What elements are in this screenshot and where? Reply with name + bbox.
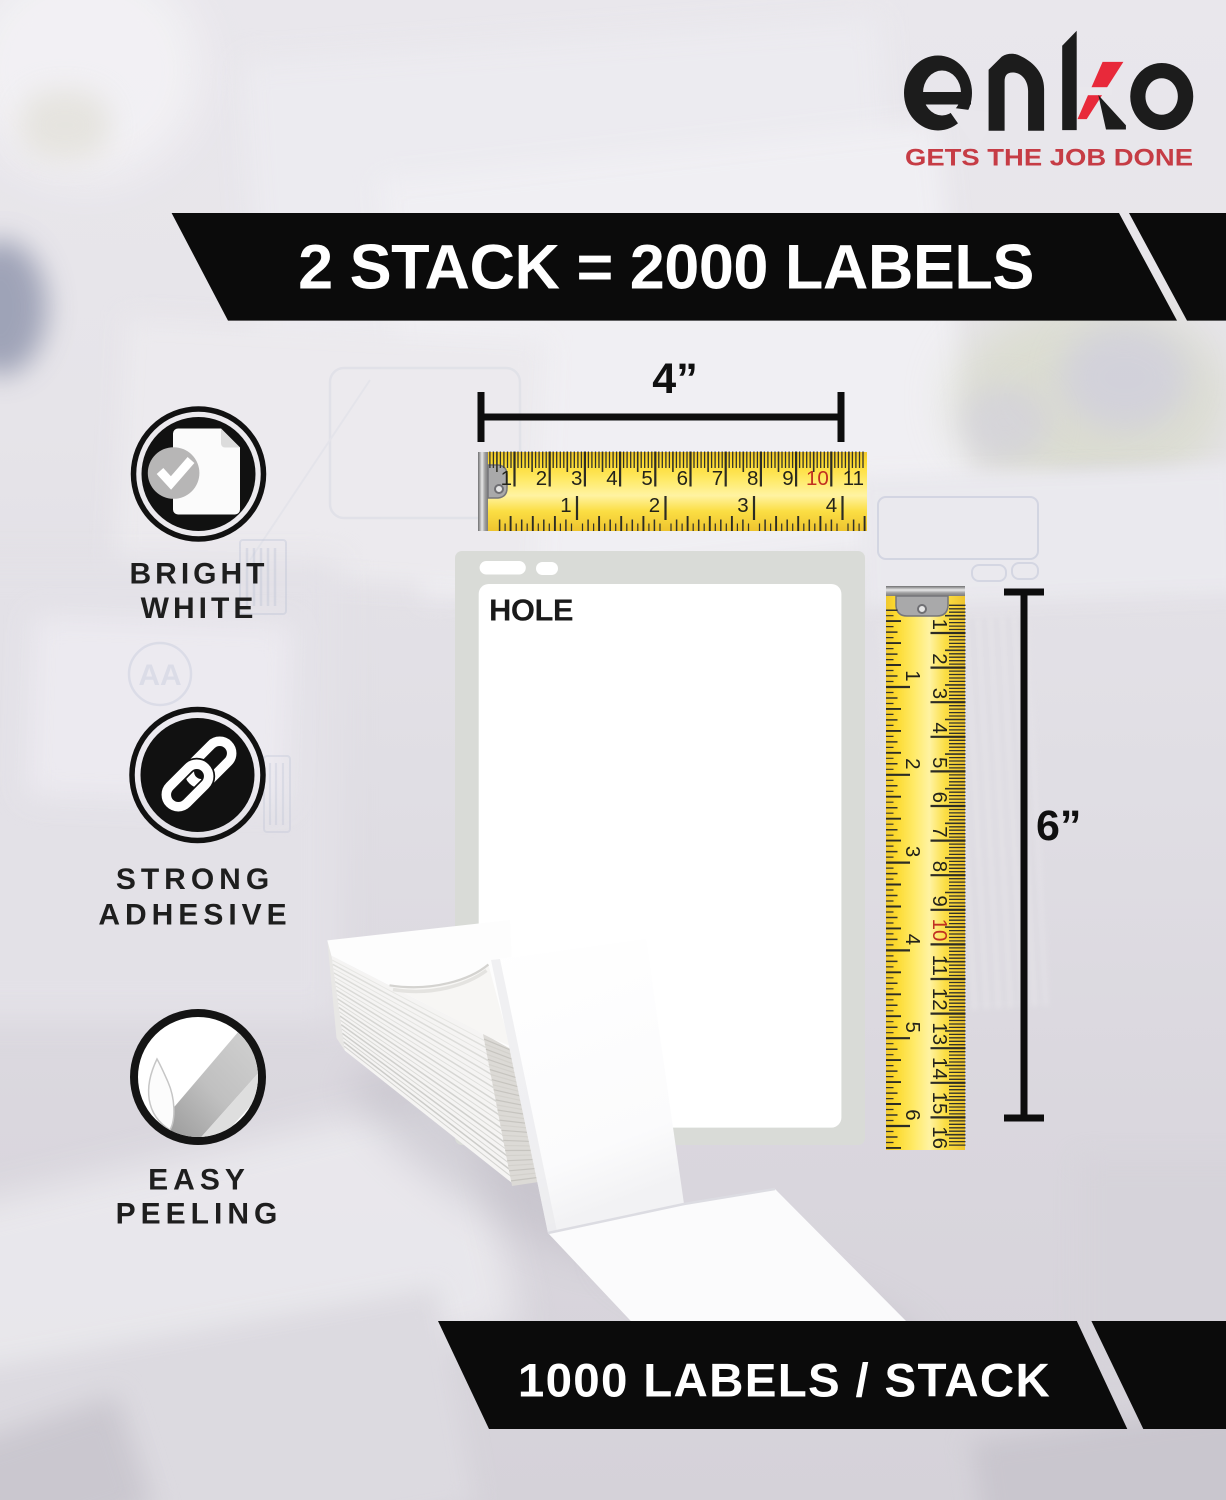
svg-text:6: 6 (677, 467, 688, 490)
svg-text:2: 2 (649, 494, 660, 517)
svg-text:3: 3 (928, 688, 951, 699)
svg-text:6”: 6” (1036, 802, 1081, 850)
svg-text:AA: AA (138, 659, 181, 692)
svg-text:9: 9 (928, 895, 951, 906)
svg-text:6: 6 (901, 1109, 924, 1120)
svg-text:3: 3 (737, 494, 748, 517)
svg-text:11: 11 (843, 467, 864, 490)
svg-text:12: 12 (928, 988, 951, 1011)
svg-text:2: 2 (536, 467, 547, 490)
svg-text:7: 7 (712, 467, 723, 490)
svg-text:1: 1 (501, 467, 512, 490)
svg-text:PEELING: PEELING (116, 1198, 283, 1231)
svg-text:15: 15 (928, 1092, 951, 1115)
svg-text:5: 5 (641, 467, 652, 490)
svg-text:4: 4 (901, 934, 924, 945)
svg-text:14: 14 (928, 1057, 951, 1080)
svg-text:ADHESIVE: ADHESIVE (98, 899, 291, 932)
svg-text:11: 11 (928, 955, 951, 976)
svg-text:BRIGHT: BRIGHT (130, 558, 269, 591)
svg-text:5: 5 (928, 757, 951, 768)
svg-text:16: 16 (928, 1126, 951, 1149)
svg-text:4: 4 (826, 494, 837, 517)
svg-text:10: 10 (928, 919, 951, 942)
svg-text:6: 6 (928, 792, 951, 803)
svg-text:8: 8 (747, 467, 758, 490)
svg-text:10: 10 (806, 467, 829, 490)
svg-text:4: 4 (606, 467, 617, 490)
svg-text:3: 3 (571, 467, 582, 490)
svg-text:EASY: EASY (148, 1164, 250, 1197)
svg-text:1: 1 (901, 670, 924, 681)
svg-text:STRONG: STRONG (116, 863, 274, 896)
svg-text:8: 8 (928, 861, 951, 872)
svg-text:7: 7 (928, 826, 951, 837)
svg-text:3: 3 (901, 846, 924, 857)
svg-text:HOLE: HOLE (489, 593, 573, 628)
svg-text:4”: 4” (652, 355, 697, 403)
svg-text:4: 4 (928, 722, 951, 733)
svg-text:13: 13 (928, 1022, 951, 1045)
svg-text:WHITE: WHITE (141, 592, 258, 625)
svg-text:2: 2 (928, 653, 951, 664)
svg-text:1: 1 (560, 494, 571, 517)
svg-text:1: 1 (928, 619, 951, 630)
svg-text:2 STACK = 2000 LABELS: 2 STACK = 2000 LABELS (298, 232, 1034, 302)
svg-text:GETS THE JOB DONE: GETS THE JOB DONE (905, 145, 1193, 172)
svg-text:5: 5 (901, 1021, 924, 1032)
svg-text:9: 9 (782, 467, 793, 490)
svg-text:1000 LABELS / STACK: 1000 LABELS / STACK (518, 1354, 1051, 1407)
svg-text:2: 2 (901, 758, 924, 769)
